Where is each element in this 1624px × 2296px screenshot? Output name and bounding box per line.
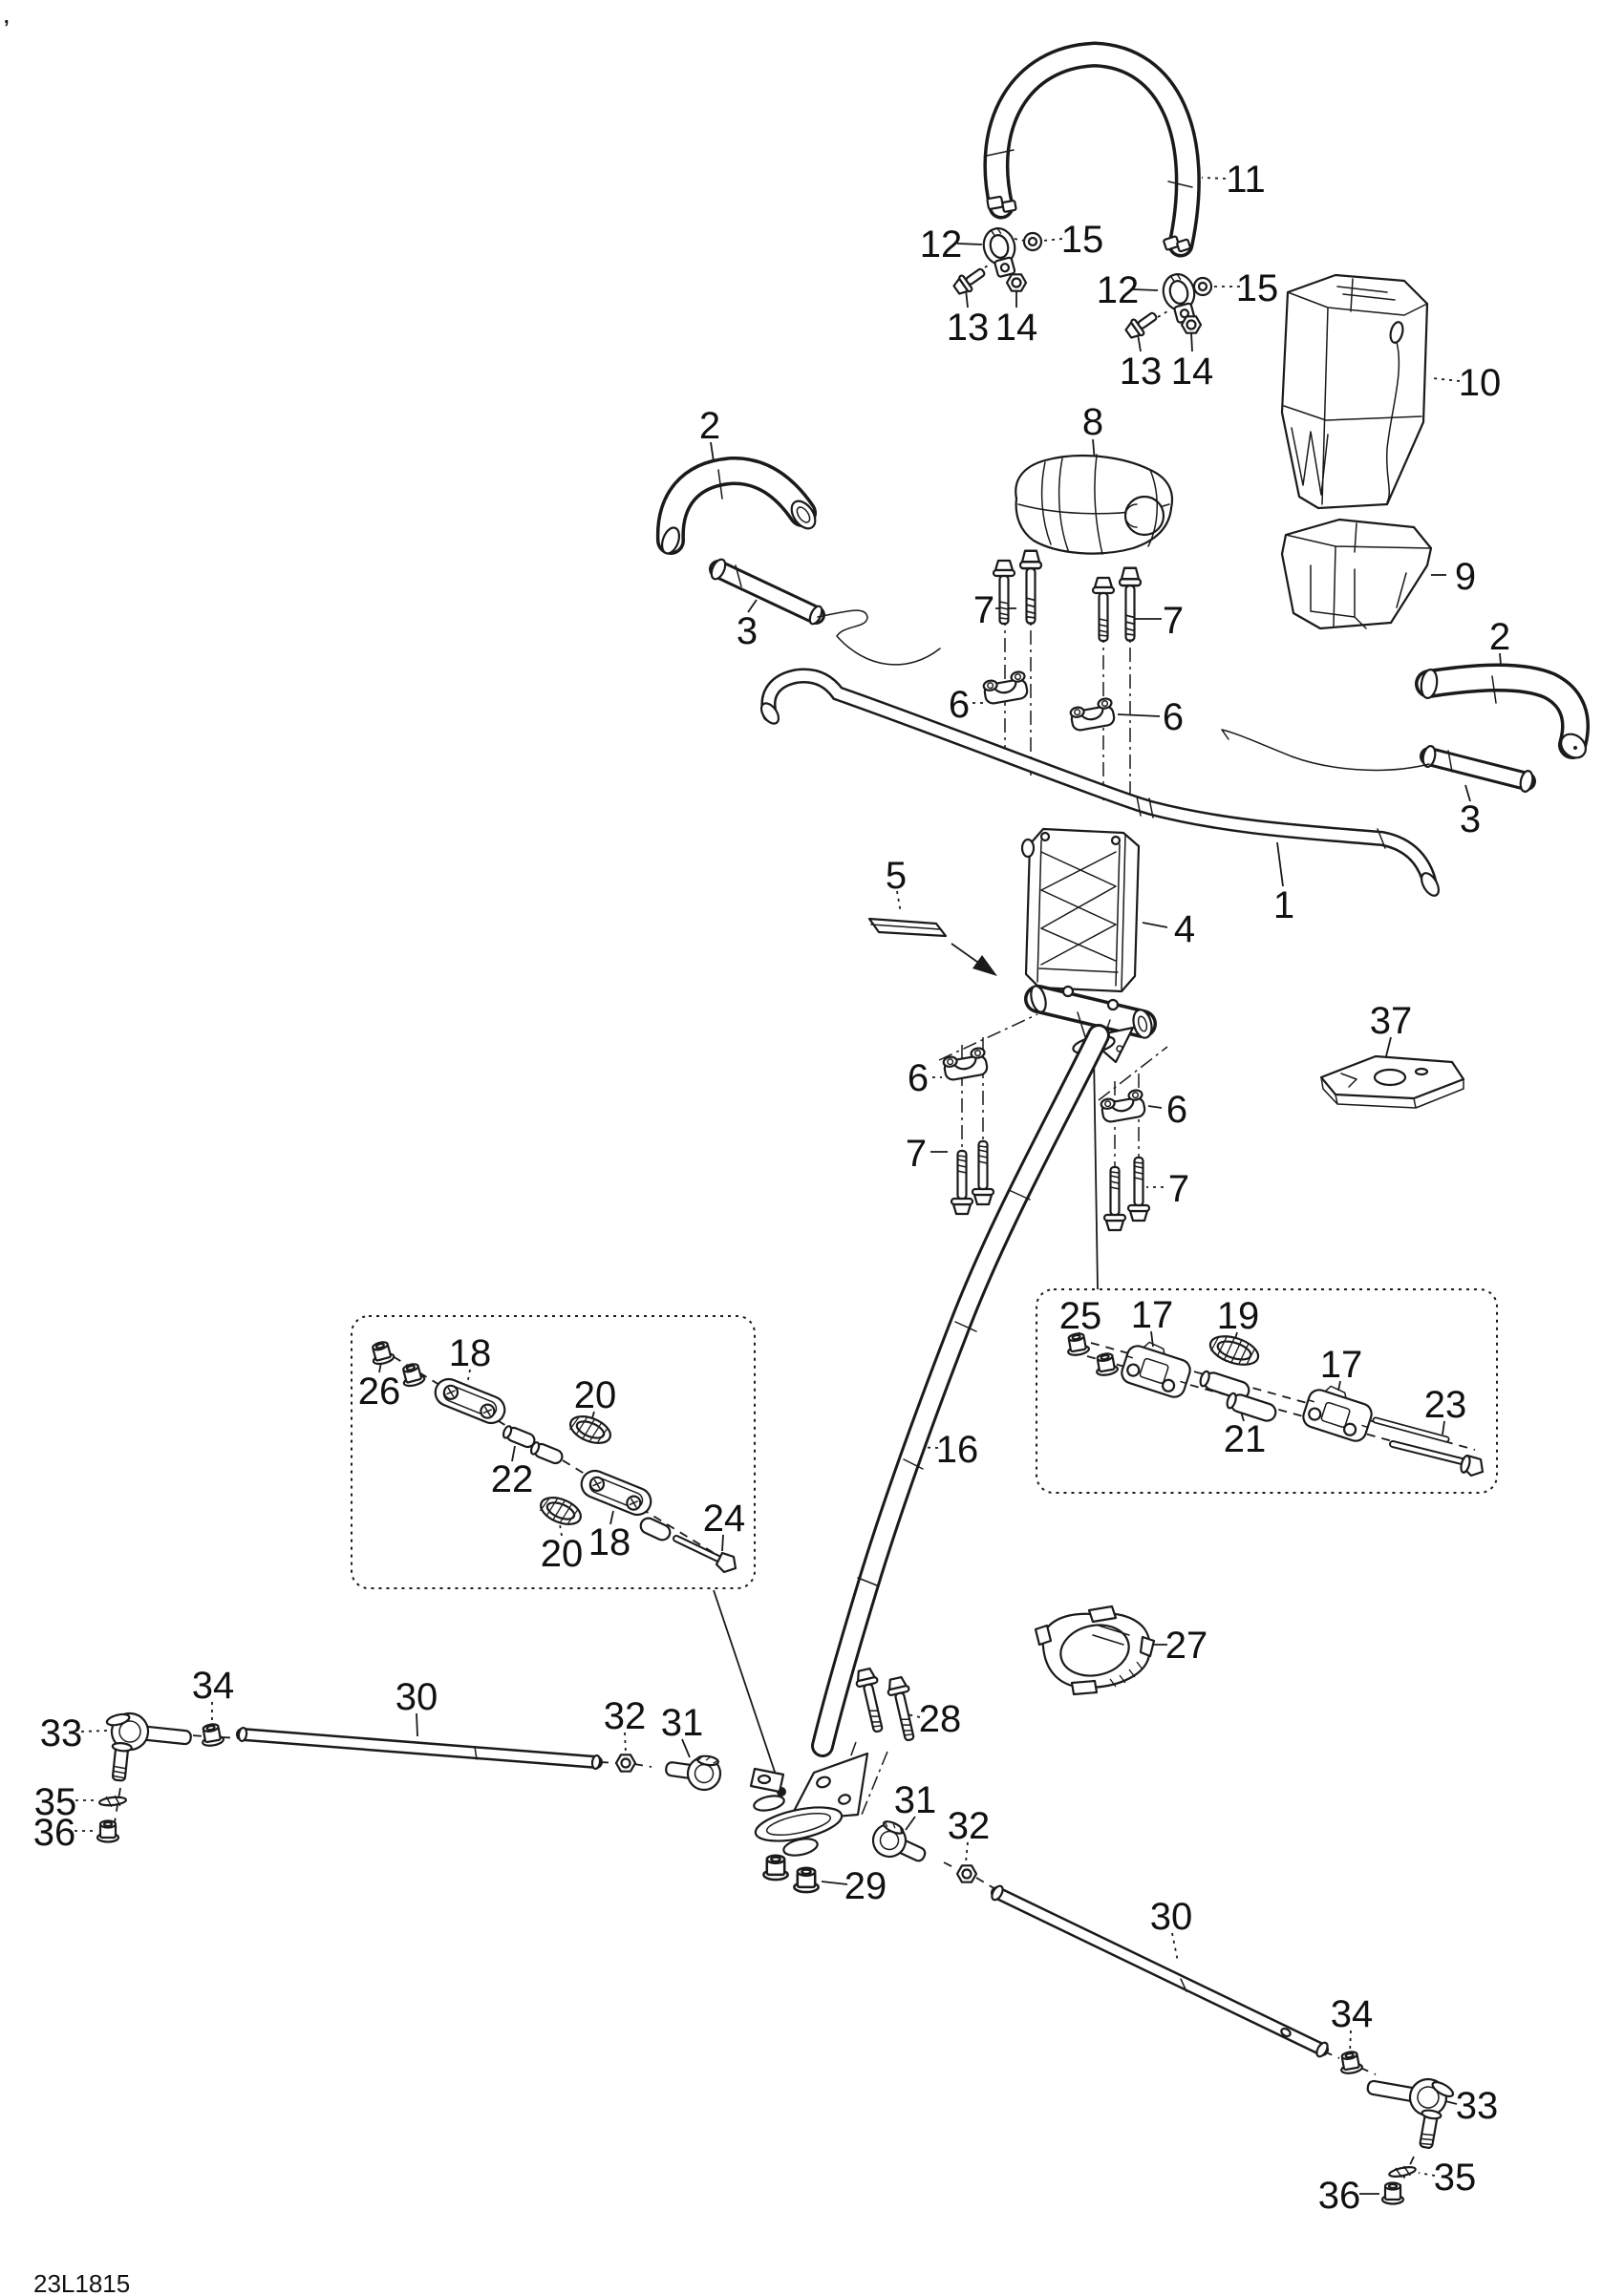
part-10-console-cover (1282, 275, 1427, 508)
part-7-bolt (1093, 578, 1114, 641)
part-label-3: 3 (737, 610, 758, 652)
part-22-pin (502, 1425, 536, 1450)
part-label-5: 5 (886, 855, 907, 897)
part-33-tie-rod-end-outer-left (99, 1711, 193, 1788)
part-label-7: 7 (973, 589, 994, 631)
part-32-nut-right (957, 1865, 976, 1881)
part-34-nut-left (200, 1723, 224, 1747)
part-31-tie-rod-end-inner-left (664, 1751, 722, 1793)
part-28-bolt (854, 1668, 888, 1733)
diagram-canvas: 1112151314121513141028937726635413766772… (0, 0, 1624, 2296)
part-label-30: 30 (1150, 1896, 1193, 1938)
part-label-17: 17 (1320, 1344, 1363, 1386)
column-lower-bracket (751, 1754, 867, 1859)
part-label-4: 4 (1174, 908, 1195, 950)
part-8-handlebar-pad (1015, 455, 1172, 554)
part-3-grip-heater-right (1222, 730, 1534, 793)
part-28-bolt (886, 1676, 920, 1742)
part-37-plate (1321, 1056, 1464, 1108)
parts-diagram-page: 1112151314121513141028937726635413766772… (0, 0, 1624, 2296)
part-label-15: 15 (1061, 219, 1104, 261)
part-label-21: 21 (1224, 1418, 1267, 1460)
part-label-14: 14 (995, 307, 1038, 349)
part-label-25: 25 (1059, 1295, 1102, 1337)
part-9-block-cover (1282, 520, 1431, 628)
part-26-nut (369, 1340, 395, 1366)
part-7-bolt (1128, 1158, 1149, 1221)
part-32-nut-left (616, 1754, 635, 1771)
part-label-15: 15 (1236, 267, 1279, 309)
part-label-9: 9 (1455, 556, 1476, 598)
part-27-bearing-plate (1036, 1606, 1154, 1694)
part-6-clamp (1069, 697, 1115, 731)
part-7-bolt (1020, 551, 1041, 624)
part-12-clamp-left (980, 225, 1022, 280)
part-13-bolt-left (951, 264, 989, 297)
part-31-tie-rod-end-inner-right (867, 1818, 931, 1872)
part-label-1: 1 (1273, 884, 1294, 926)
part-13-bolt-right (1123, 308, 1161, 341)
part-label-24: 24 (703, 1498, 746, 1540)
part-2-grip-left (659, 470, 821, 556)
part-label-34: 34 (1331, 1993, 1374, 2035)
part-label-28: 28 (919, 1698, 962, 1740)
part-14-nut-right (1182, 316, 1201, 332)
part-18-clamp-half (578, 1467, 655, 1519)
part-7-bolt (994, 561, 1015, 624)
part-label-32: 32 (948, 1805, 991, 1847)
part-29-nut (763, 1856, 787, 1880)
part-5-wedge (869, 919, 997, 976)
part-36-nut-left (97, 1821, 118, 1842)
part-17-clamp (1300, 1381, 1376, 1444)
part-36-nut-right (1382, 2183, 1403, 2204)
part-label-34: 34 (192, 1665, 235, 1707)
part-label-17: 17 (1131, 1294, 1174, 1336)
part-label-13: 13 (947, 307, 990, 349)
part-label-20: 20 (541, 1533, 584, 1575)
part-label-7: 7 (1168, 1168, 1189, 1210)
part-20-bushing (537, 1493, 585, 1530)
part-label-35: 35 (1434, 2157, 1477, 2199)
part-35-pin-right (1388, 2164, 1416, 2179)
corner-mark: , (4, 7, 10, 28)
part-4-riser-block (1022, 829, 1139, 991)
part-label-23: 23 (1424, 1384, 1467, 1426)
part-18-clamp-half (432, 1375, 509, 1427)
part-label-2: 2 (699, 405, 720, 447)
part-label-19: 19 (1217, 1295, 1260, 1337)
part-label-10: 10 (1459, 362, 1502, 404)
part-30-tie-rod-left (238, 1728, 601, 1770)
part-label-3: 3 (1460, 798, 1481, 840)
part-label-6: 6 (949, 684, 970, 726)
part-label-31: 31 (661, 1702, 704, 1744)
part-7-bolt (951, 1151, 972, 1214)
part-17-clamp (1119, 1337, 1194, 1400)
heater-wire-left (818, 610, 940, 665)
part-20-bushing (566, 1412, 614, 1449)
part-label-18: 18 (588, 1521, 631, 1563)
part-label-11: 11 (1226, 159, 1266, 201)
part-label-32: 32 (604, 1695, 647, 1737)
part-label-14: 14 (1171, 351, 1214, 393)
part-label-6: 6 (908, 1057, 929, 1099)
part-29-nut (794, 1868, 818, 1892)
part-label-27: 27 (1165, 1625, 1208, 1667)
part-34-nut-right (1338, 2051, 1362, 2074)
part-label-36: 36 (33, 1812, 76, 1854)
part-label-6: 6 (1163, 696, 1184, 738)
part-label-31: 31 (894, 1779, 937, 1821)
part-2-grip-right (1420, 669, 1591, 762)
part-label-37: 37 (1370, 1000, 1413, 1042)
part-label-22: 22 (491, 1458, 534, 1500)
part-7-bolt (972, 1141, 994, 1204)
part-35-pin-left (99, 1796, 127, 1808)
part-label-18: 18 (449, 1332, 492, 1374)
part-label-8: 8 (1082, 401, 1103, 443)
heater-wire-right (1222, 730, 1429, 770)
part-label-7: 7 (1163, 600, 1184, 642)
part-label-29: 29 (844, 1865, 887, 1907)
part-6-clamp (942, 1047, 988, 1080)
part-label-12: 12 (1097, 269, 1140, 311)
part-33-tie-rod-end-outer-right (1359, 2068, 1457, 2150)
part-label-33: 33 (1456, 2085, 1499, 2127)
wedge-arrow (972, 955, 997, 976)
part-22-pin (529, 1441, 564, 1466)
part-label-7: 7 (906, 1133, 927, 1175)
part-15-washer-right (1194, 278, 1211, 295)
part-15-washer-left (1024, 233, 1041, 250)
part-label-20: 20 (574, 1374, 617, 1416)
part-label-13: 13 (1120, 351, 1163, 393)
part-label-36: 36 (1318, 2175, 1361, 2217)
part-label-26: 26 (358, 1371, 401, 1413)
part-label-2: 2 (1489, 616, 1510, 658)
part-25-washer (1094, 1352, 1118, 1376)
part-label-33: 33 (40, 1712, 83, 1754)
part-7-bolt (1104, 1167, 1125, 1230)
part-7-bolt (1120, 568, 1141, 641)
part-14-nut-left (1007, 274, 1026, 290)
part-label-16: 16 (936, 1429, 979, 1471)
part-label-6: 6 (1166, 1089, 1187, 1131)
page-code: 23L1815 (33, 2269, 130, 2296)
part-label-30: 30 (395, 1676, 438, 1718)
part-label-12: 12 (920, 223, 963, 266)
